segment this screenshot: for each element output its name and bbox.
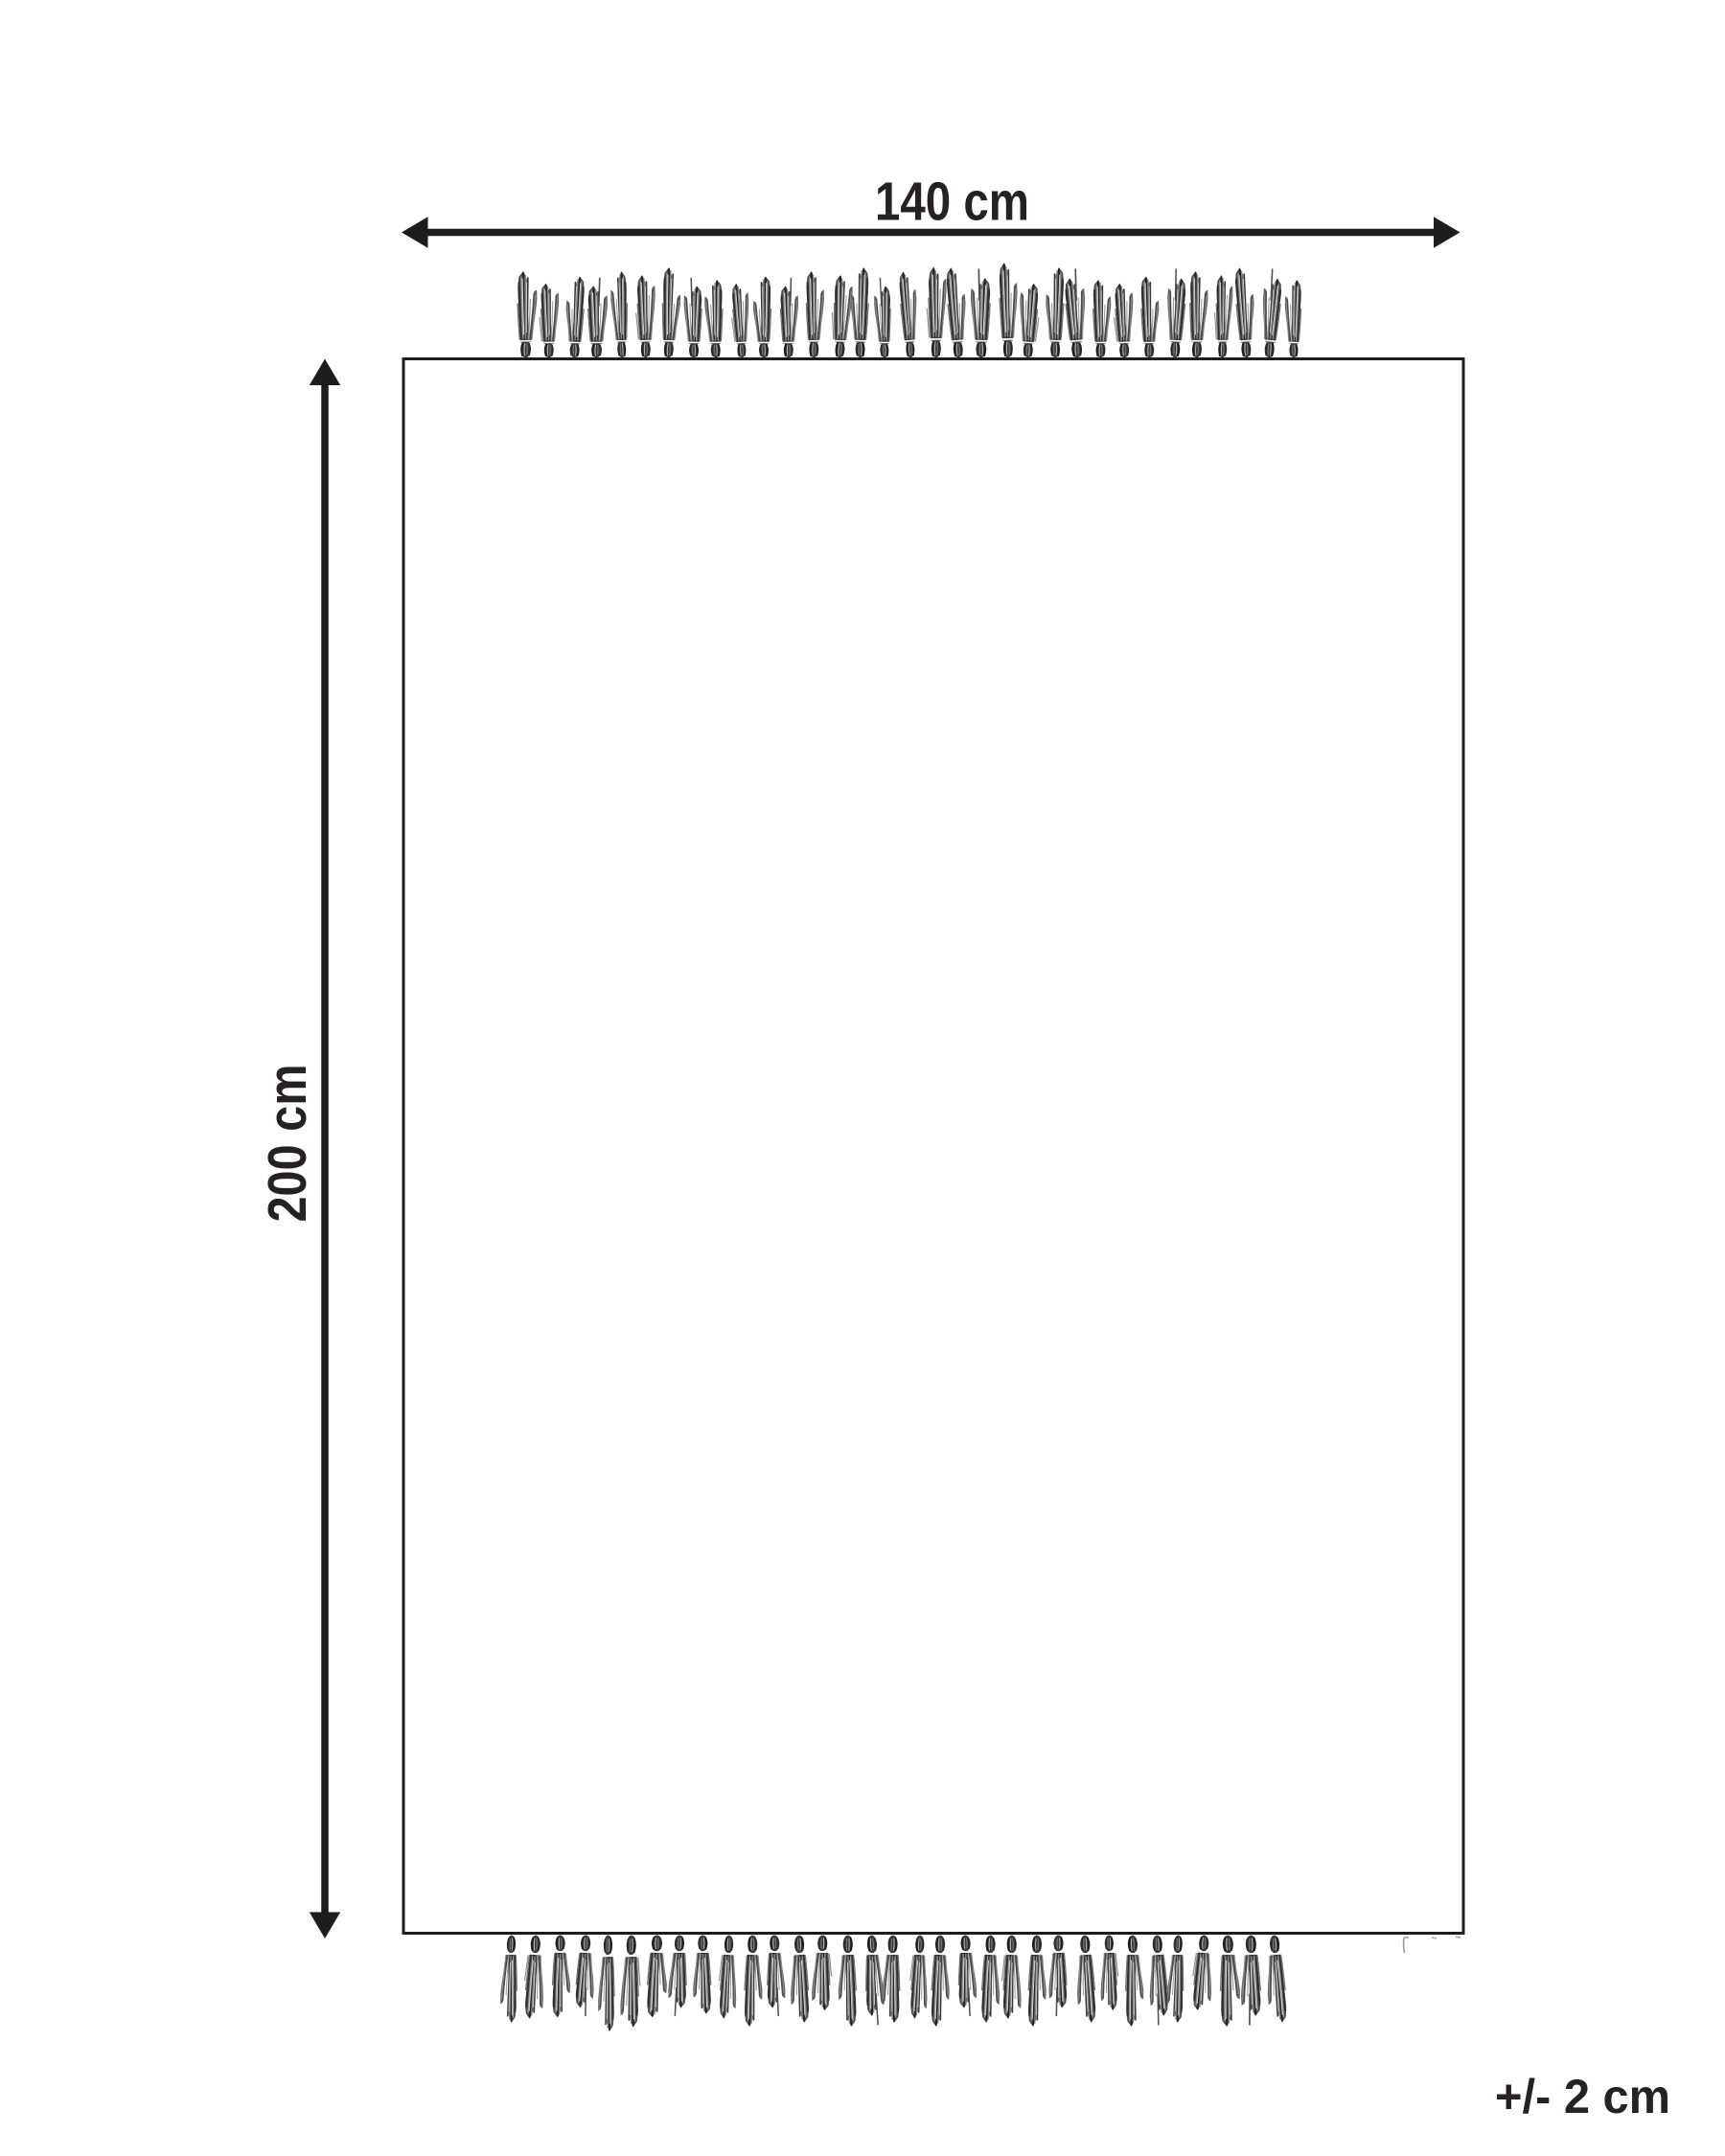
svg-text:200 cm: 200 cm [257,1065,317,1223]
svg-text:140 cm: 140 cm [875,172,1029,232]
svg-text:+/- 2 cm: +/- 2 cm [1495,2070,1670,2123]
